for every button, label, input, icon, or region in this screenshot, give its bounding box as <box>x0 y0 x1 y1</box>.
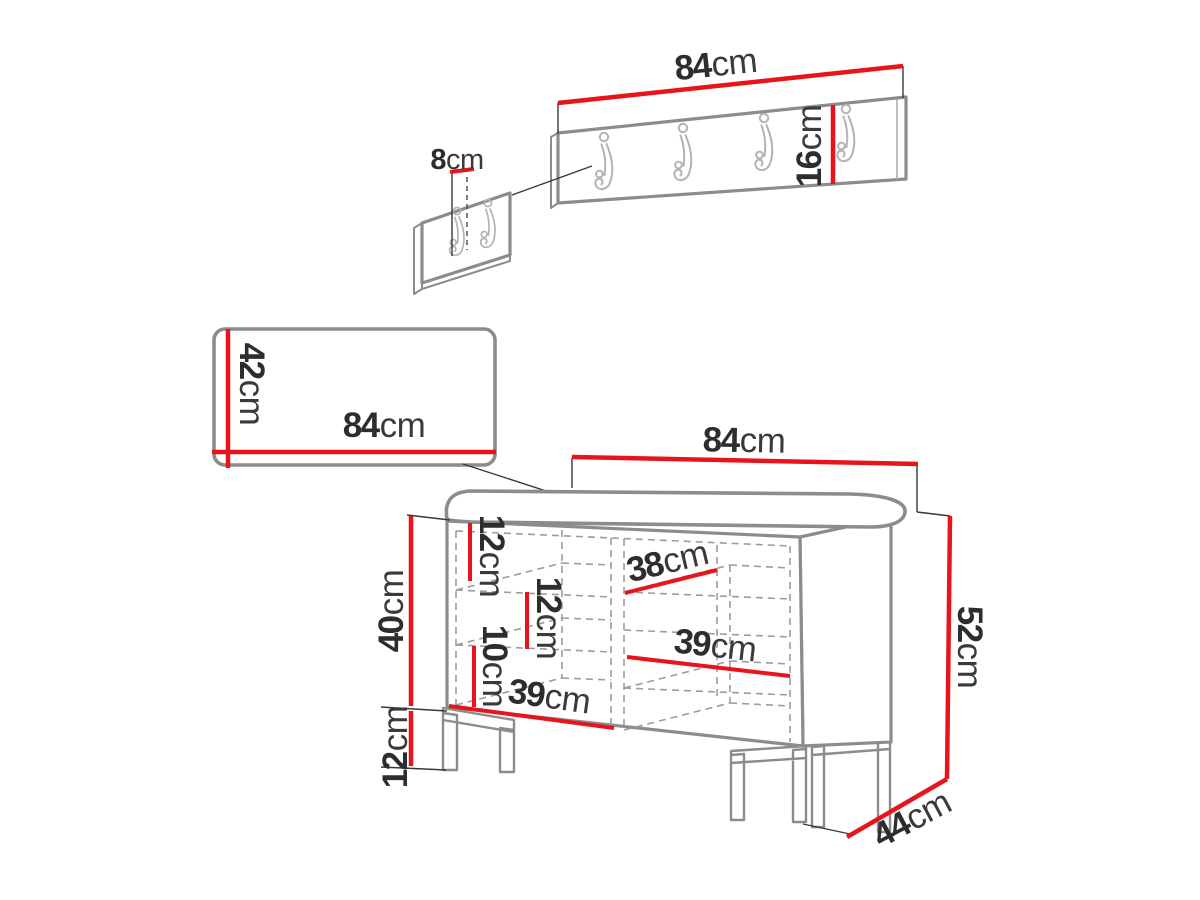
dim-label-hook-spacing: 8cm <box>430 144 483 176</box>
detail-panel <box>422 193 510 283</box>
shoe-bench: 84cm 52cm 44cm 40cm 12cm 12cm 12cm 10cm … <box>372 421 989 856</box>
bench-leg-front-left <box>443 708 514 772</box>
dim-label-bench-total-height: 52cm <box>950 606 989 689</box>
dim-line-bench-total-height <box>947 516 950 779</box>
bench-right-side-face <box>800 517 891 746</box>
furniture-dimension-diagram: 84cm 16cm 8cm 42cm 84cm <box>0 0 1200 900</box>
dim-label-bench-body-height: 40cm <box>372 570 411 653</box>
dim-label-bench-top-gap: 12cm <box>472 515 511 598</box>
diagram-canvas: 84cm 16cm 8cm 42cm 84cm <box>0 0 1200 900</box>
dim-label-panel-width: 84cm <box>343 406 426 445</box>
dim-label-bench-middle-gap: 12cm <box>529 577 568 660</box>
dim-label-coat-rack-height: 16cm <box>790 105 829 188</box>
bench-cushion <box>446 491 905 527</box>
coat-rack: 84cm 16cm <box>551 41 906 208</box>
dim-label-panel-height: 42cm <box>232 343 271 426</box>
dim-label-bench-width: 84cm <box>702 421 785 461</box>
mirror-panel: 42cm 84cm <box>212 329 577 501</box>
dim-label-bench-leg-height: 12cm <box>376 706 415 789</box>
bench-leg-front-right <box>731 746 806 822</box>
